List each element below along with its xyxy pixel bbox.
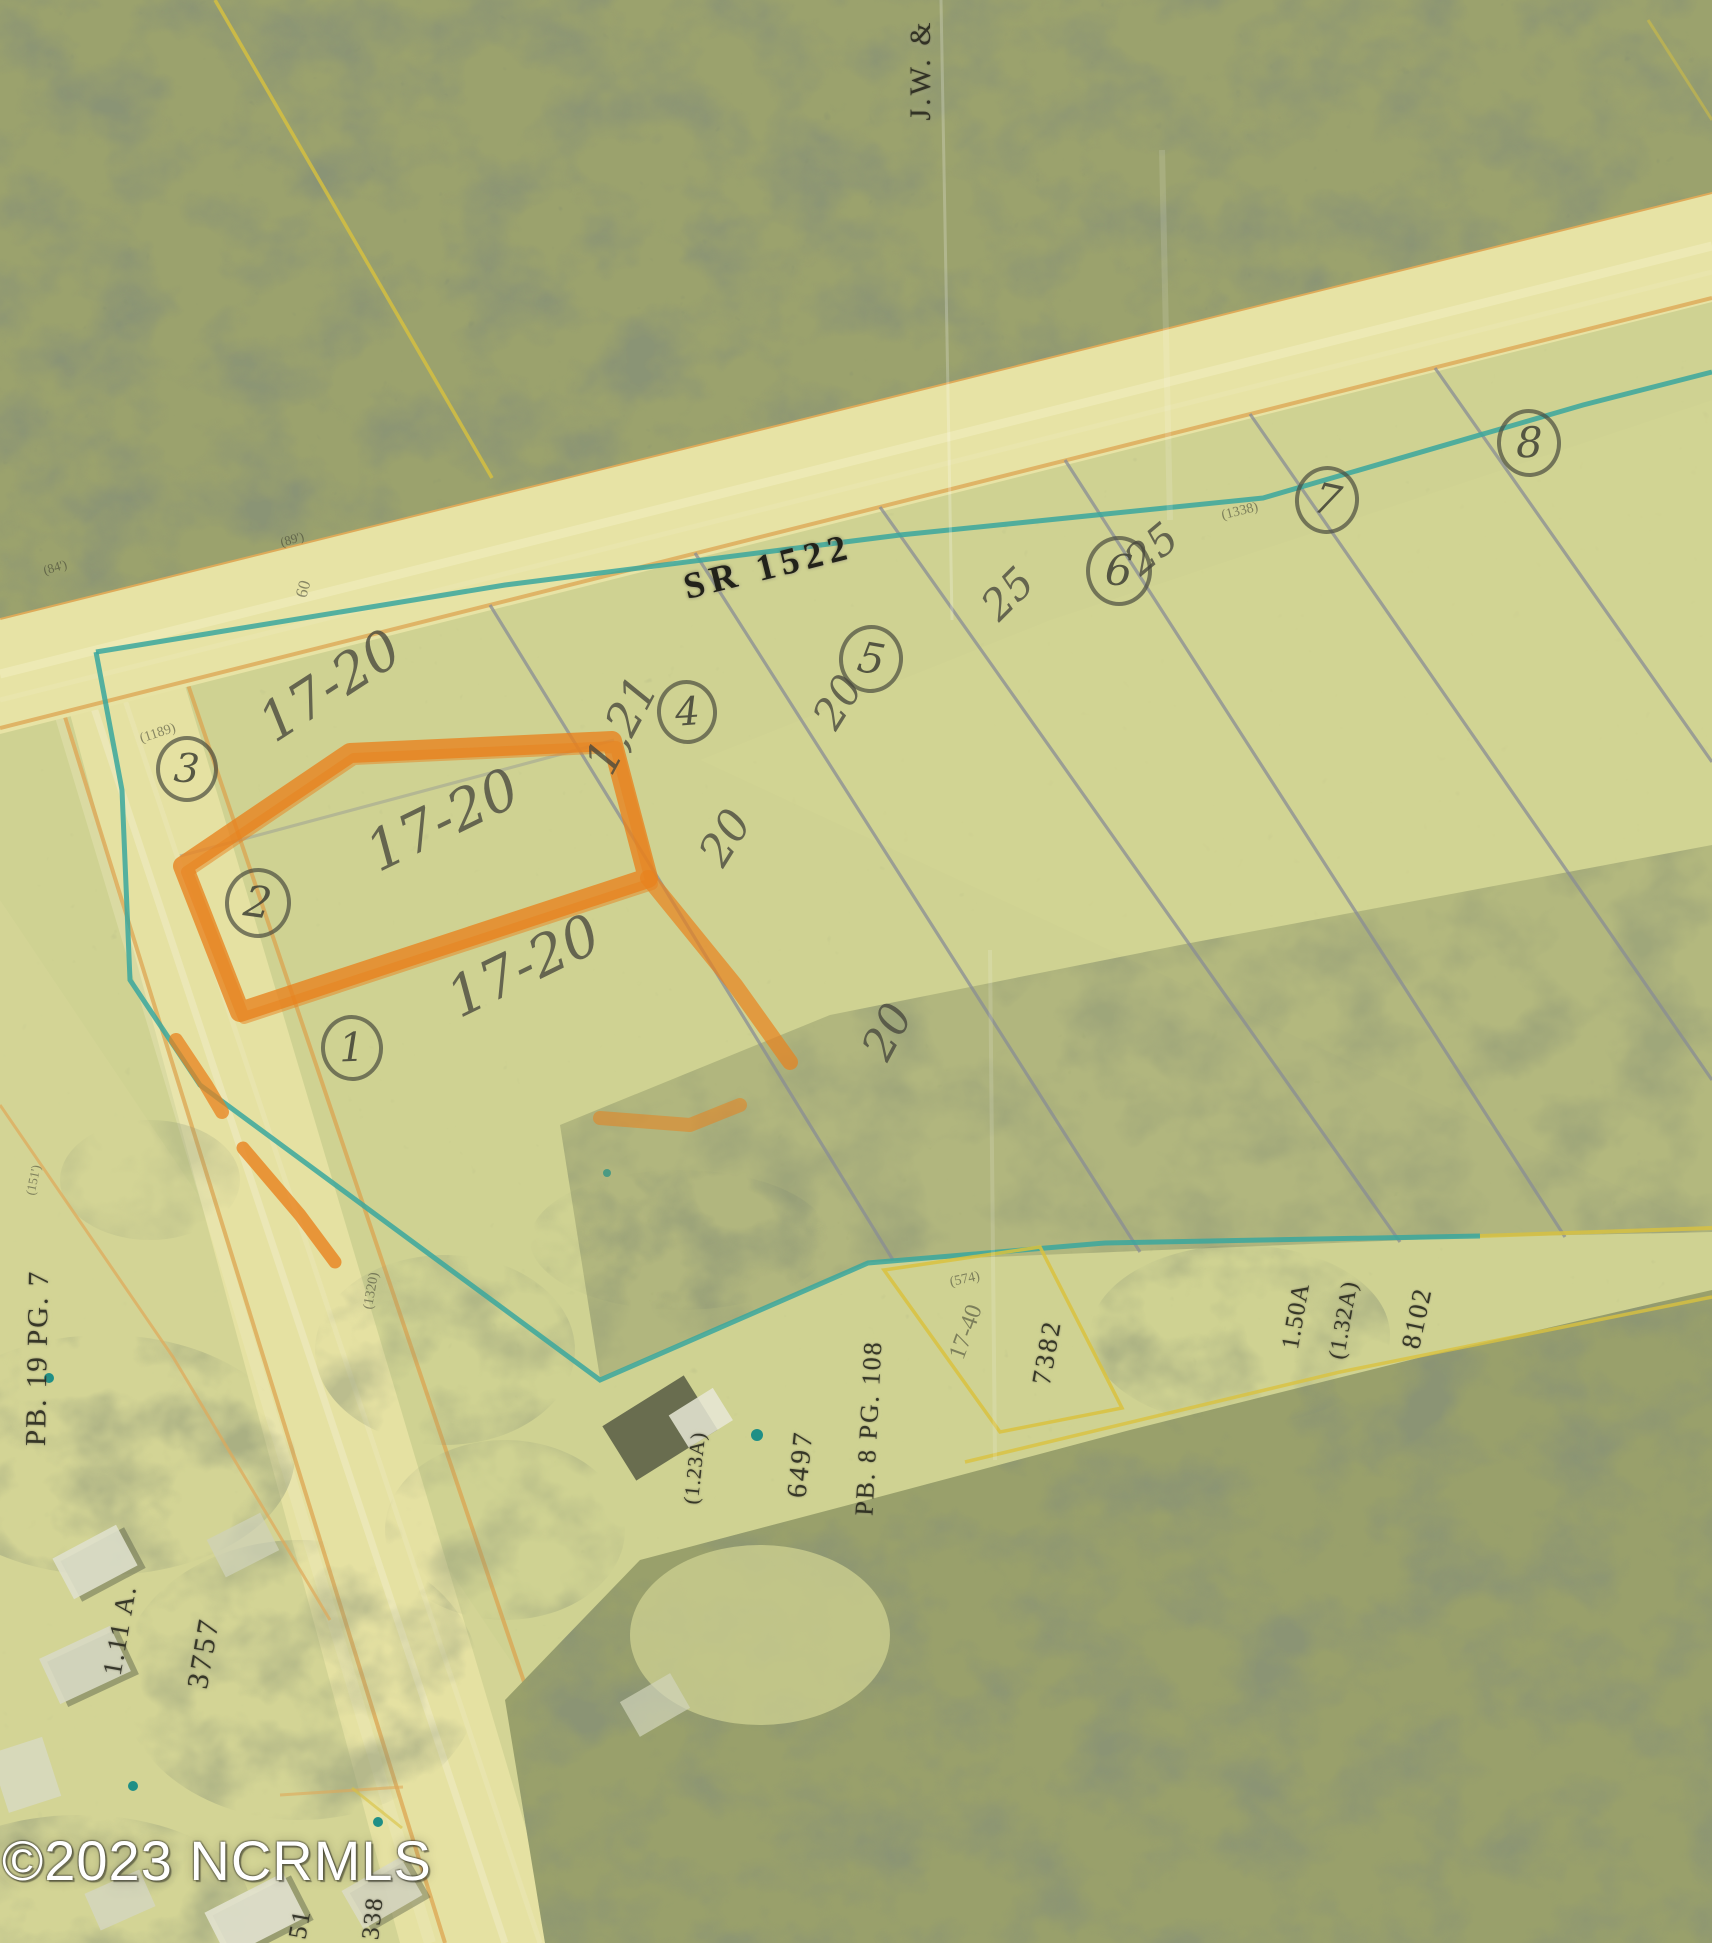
parcel-label: PB. 19 PG. 7	[22, 1270, 54, 1447]
road-name-label: SR 1522	[680, 528, 856, 606]
parcel-label: 8102	[1397, 1285, 1436, 1351]
survey-dimension-label: (89')	[279, 529, 306, 548]
ncrmls-watermark: ©2023 NCRMLS	[2, 1833, 432, 1889]
lot-circle-1: 1	[318, 1012, 387, 1084]
survey-dimension-label: (574)	[949, 1270, 982, 1290]
parcel-label: 6497	[784, 1429, 819, 1500]
survey-dimension-label: (1320)	[362, 1271, 382, 1310]
handwritten-note: 20	[855, 997, 920, 1067]
parcel-label: 51	[285, 1907, 316, 1941]
lot-circle-7: 7	[1291, 462, 1364, 538]
plat-map: SR 1522 ©2023 NCRMLS 1234567817-2017-201…	[0, 0, 1712, 1943]
lot-circle-4: 4	[653, 676, 721, 748]
parcel-label: PB. 8 PG. 108	[851, 1340, 886, 1517]
parcel-label: 7382	[1028, 1317, 1066, 1387]
parcel-label: 3757	[183, 1615, 225, 1691]
survey-dimension-label: (84')	[42, 557, 69, 576]
survey-dimension-label: 60	[293, 579, 314, 600]
handwritten-note: 17-20	[358, 760, 528, 881]
handwritten-note: 20	[693, 803, 760, 874]
handwritten-note: 17-20	[250, 621, 410, 751]
parcel-label: J.W. &	[906, 19, 936, 120]
parcel-label: 1.50A	[1278, 1281, 1314, 1351]
parcel-label: 1.11 A.	[99, 1582, 142, 1677]
parcel-label: 338	[358, 1895, 387, 1941]
lot-circle-8: 8	[1494, 406, 1564, 479]
handwritten-note: 25	[974, 560, 1041, 627]
survey-dimension-label: (1338)	[1220, 501, 1260, 524]
handwritten-note: 1,21	[577, 669, 666, 781]
map-annotations: SR 1522 ©2023 NCRMLS 1234567817-2017-201…	[0, 0, 1712, 1943]
parcel-label: (1.23A)	[681, 1431, 710, 1506]
handwritten-note: 17-20	[439, 906, 609, 1027]
lot-circle-3: 3	[156, 736, 218, 802]
survey-dimension-label: (151')	[23, 1164, 42, 1197]
parcel-label: (1.32A)	[1325, 1279, 1361, 1361]
survey-dimension-label: 17-40	[945, 1302, 987, 1363]
lot-circle-2: 2	[223, 866, 294, 940]
